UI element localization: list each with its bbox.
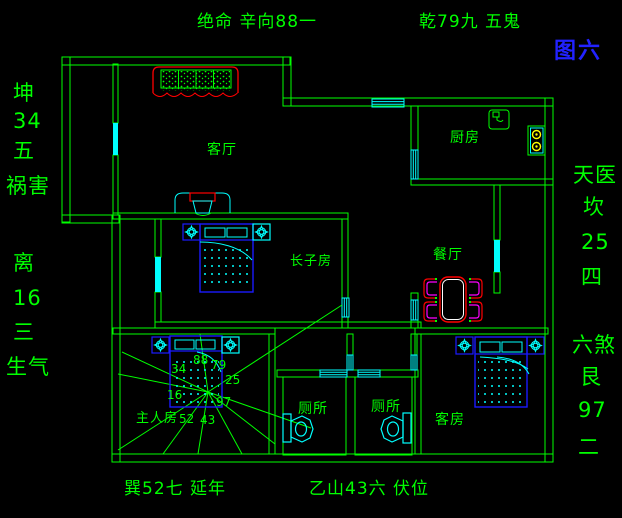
- annotation-bottom-right: 乙山43六 伏位: [309, 481, 429, 498]
- flying-star-number-43: 43: [200, 414, 215, 426]
- kitchen-stove: [528, 126, 545, 155]
- hall-window-mid: [411, 300, 418, 320]
- flying-star-number-52: 52: [179, 413, 194, 425]
- dining-side-door: [494, 240, 500, 272]
- annotation-top: 绝命 辛向88一: [197, 14, 317, 31]
- flying-star-number-97: 97: [216, 396, 231, 408]
- figure-number-label: 图六: [554, 41, 602, 63]
- room-label-dining: 餐厅: [433, 248, 463, 262]
- living-room-side-door: [113, 123, 118, 155]
- bedside-lamp-icon: [186, 226, 198, 238]
- bay-window-planter: [153, 67, 238, 97]
- bedside-lamp-icon: [530, 340, 542, 352]
- flying-star-number-88: 88: [193, 354, 208, 366]
- windows: [320, 99, 418, 377]
- annotation-bottom-left: 巽52七 延年: [124, 481, 226, 498]
- eldest-son-room-door: [155, 257, 161, 292]
- tv-cabinet: [175, 193, 230, 216]
- annotation-left-five: 五: [13, 141, 35, 162]
- annotation-left-shengqi: 生气: [6, 357, 50, 378]
- annotation-left-three: 三: [13, 322, 35, 343]
- annotation-left-li: 离: [13, 253, 35, 274]
- annotation-right-two: 二: [578, 437, 600, 458]
- flying-star-number-16: 16: [167, 389, 182, 401]
- room-label-guest: 客房: [435, 413, 465, 427]
- annotation-left-huohai: 祸害: [6, 176, 50, 197]
- kitchen-door-window: [411, 150, 418, 179]
- dining-table: [440, 277, 466, 322]
- room-label-eldest-son: 长子房: [290, 255, 332, 268]
- annotation-right-tianyi: 天医: [573, 165, 617, 186]
- bedside-lamp-icon: [459, 340, 471, 352]
- dining-table-set: [424, 277, 482, 322]
- room-label-toilet-right: 厕所: [371, 400, 401, 414]
- bed-eldest-son: [200, 224, 253, 292]
- toilet-fixture-left: [283, 414, 313, 442]
- annotation-right-97: 97: [578, 400, 607, 421]
- annotation-left-16: 16: [13, 288, 42, 309]
- kitchen-sink: [489, 110, 509, 129]
- eldest-son-wall-window: [342, 298, 349, 317]
- bedside-lamp-icon: [225, 339, 237, 351]
- room-label-master: 主人房: [136, 412, 178, 425]
- flying-star-number-79: 79: [211, 359, 226, 371]
- bedside-lamp-icon: [256, 226, 268, 238]
- dining-chairs: [424, 278, 482, 322]
- annotation-left-kun: 坤: [13, 83, 35, 104]
- toilet-left-window: [320, 370, 347, 377]
- annotation-right-kan: 坎: [583, 197, 605, 218]
- annotation-left-34: 34: [13, 111, 42, 132]
- room-label-living: 客厅: [207, 143, 237, 157]
- hall-window-right: [411, 355, 417, 370]
- room-label-kitchen: 厨房: [450, 131, 480, 145]
- flying-star-number-25: 25: [225, 374, 240, 386]
- toilet-right-window: [358, 370, 380, 377]
- flying-star-number-34: 34: [171, 363, 186, 375]
- annotation-right-25: 25: [581, 232, 610, 253]
- toilet-fixture-right: [381, 413, 411, 443]
- bedside-lamp-icon: [155, 339, 167, 351]
- cad-floor-plan-canvas: 绝命 辛向88一 乾79九 五鬼 图六 坤 34 五 祸害 离 16 三 生气 …: [0, 0, 622, 518]
- annotation-right-gen: 艮: [580, 367, 602, 388]
- bed-guest: [475, 337, 529, 407]
- annotation-right-liusha: 六煞: [572, 335, 616, 356]
- room-label-toilet-left: 厕所: [298, 402, 328, 416]
- hall-window-left: [347, 355, 353, 370]
- annotation-top-right: 乾79九 五鬼: [419, 14, 521, 31]
- annotation-right-four: 四: [581, 267, 603, 288]
